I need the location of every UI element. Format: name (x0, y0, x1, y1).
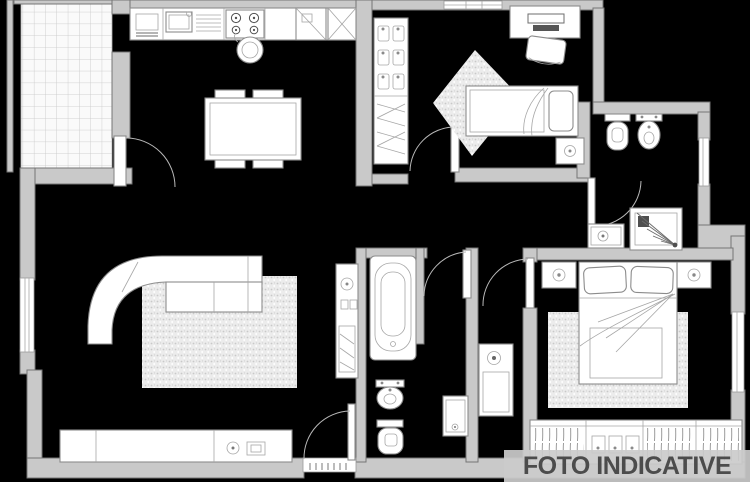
desk (510, 6, 580, 38)
nightstand-2 (556, 138, 584, 164)
bidet-2 (636, 114, 662, 149)
utility-cabinet (479, 344, 513, 416)
entrance-door (303, 404, 356, 472)
bed-2 (466, 86, 578, 136)
toilet-1 (377, 420, 403, 454)
tall-cabinet-1 (296, 8, 326, 40)
tv-sideboard (60, 430, 292, 462)
toilet-2 (605, 114, 630, 150)
bathtub (370, 256, 416, 360)
watermark-banner: FOTO INDICATIVE (504, 450, 750, 482)
floor-plan (0, 0, 750, 482)
bathroom-2-window (699, 138, 709, 186)
master-bedroom-door (483, 258, 534, 308)
shower (630, 208, 682, 250)
master-bedroom-window (732, 312, 744, 392)
bedroom-2-window (444, 1, 502, 9)
master-bed (579, 262, 677, 384)
watermark-text: FOTO INDICATIVE (523, 452, 731, 481)
bedroom-2-door (410, 124, 459, 172)
balcony (21, 3, 112, 168)
stove (226, 10, 264, 38)
bidet-1 (376, 380, 404, 409)
bathroom-1-door (424, 250, 471, 298)
balcony-door (114, 136, 175, 187)
tall-cabinet-2 (328, 8, 356, 40)
living-room-window (20, 278, 34, 352)
shelved-closet (374, 18, 408, 164)
nightstand-left (542, 262, 576, 288)
laundry-column (336, 264, 358, 378)
desk-chair (525, 35, 566, 66)
washbasin-1 (443, 396, 468, 436)
floor-plan-page: FOTO INDICATIVE (0, 0, 750, 482)
washbasin-2 (588, 224, 624, 248)
nightstand-right (677, 262, 711, 288)
dining-set (205, 90, 301, 168)
